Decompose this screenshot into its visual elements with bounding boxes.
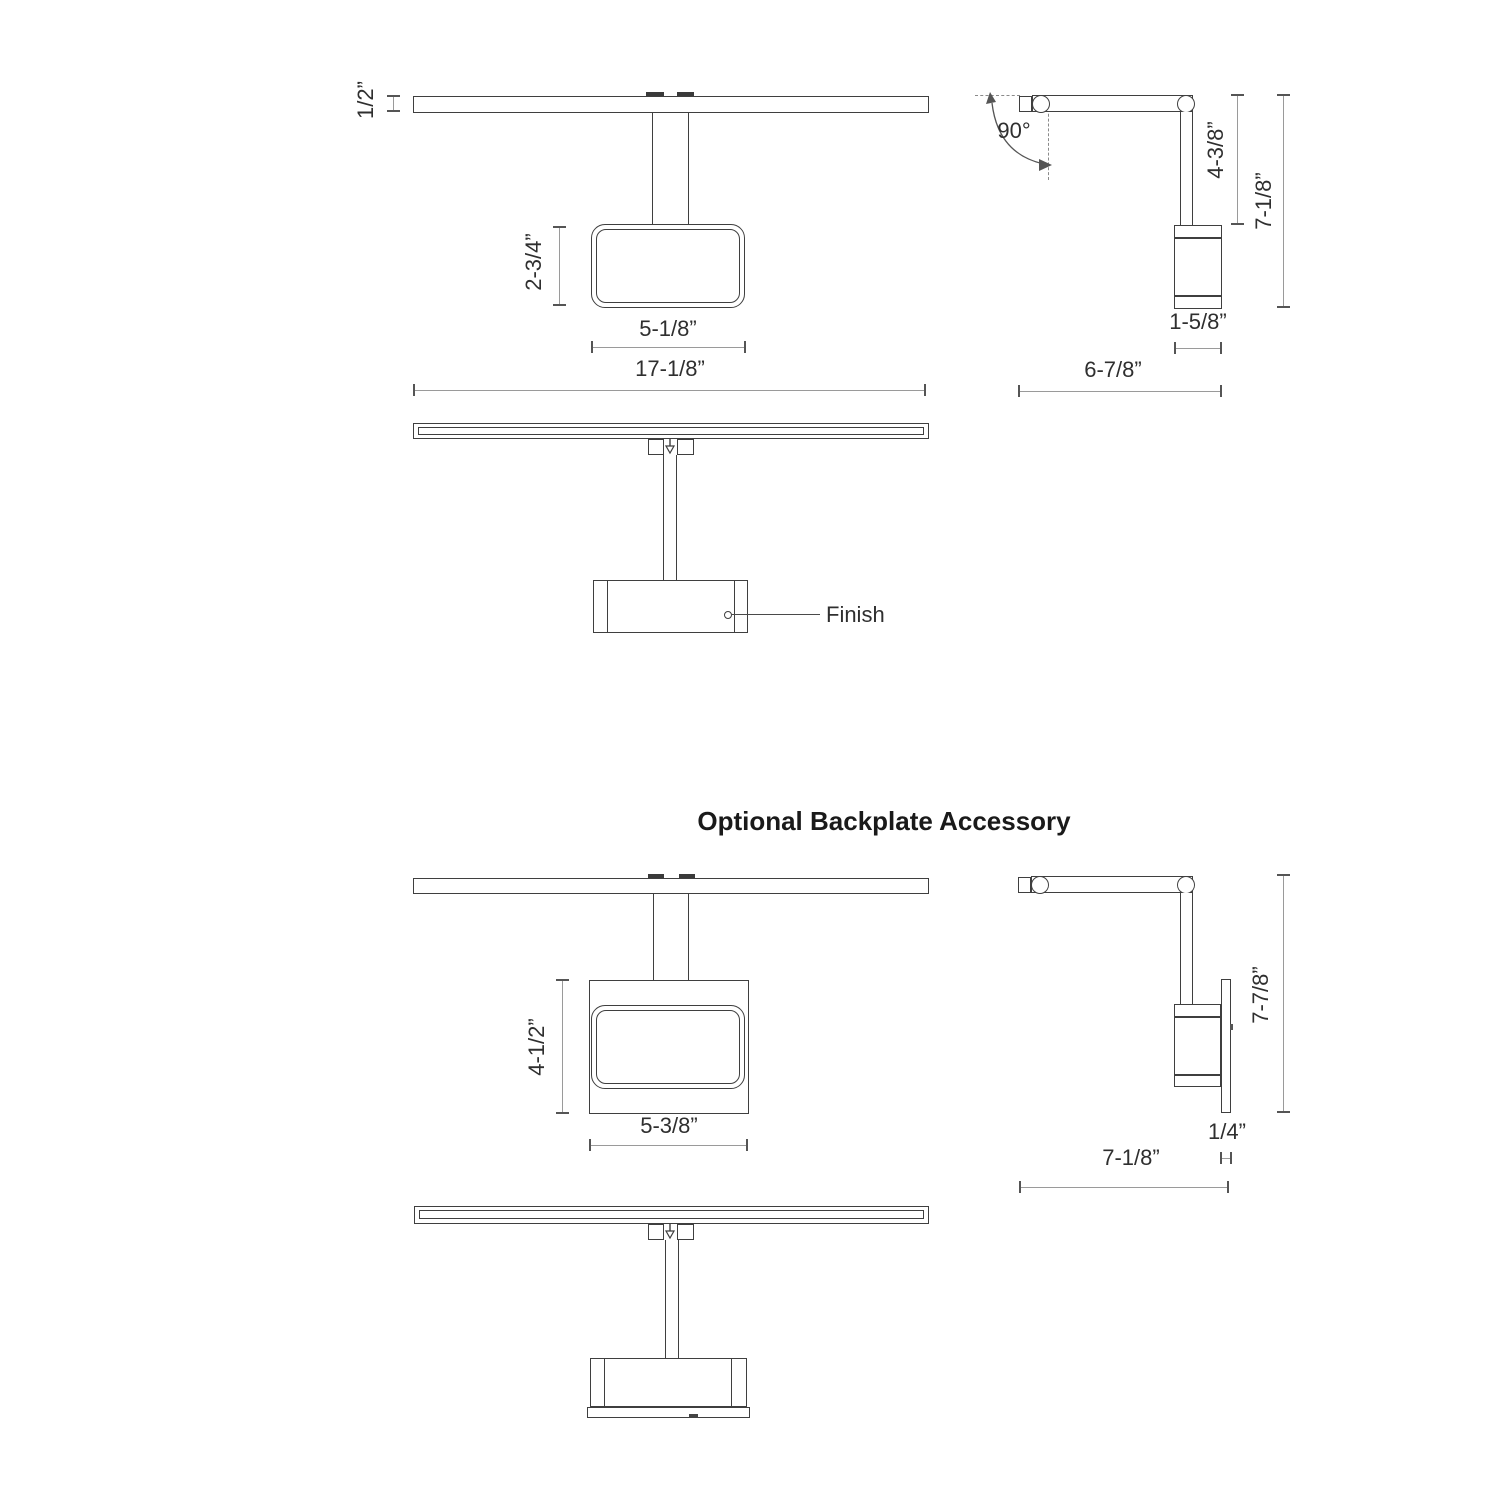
dim-tick bbox=[387, 95, 400, 97]
dim-line-overall-depth bbox=[1020, 1187, 1228, 1188]
dim-line-overall-height bbox=[1283, 875, 1284, 1113]
arm-stem bbox=[663, 455, 677, 580]
finish-label: Finish bbox=[826, 602, 885, 628]
horizontal-arm bbox=[1032, 95, 1193, 112]
dim-tick bbox=[1231, 94, 1244, 96]
dim-tick bbox=[1277, 874, 1290, 876]
dim-tick bbox=[1220, 1152, 1222, 1164]
vertical-arm bbox=[1180, 893, 1193, 1005]
light-bar bbox=[413, 878, 929, 894]
mount-tab-right bbox=[677, 92, 694, 96]
dim-tick bbox=[553, 304, 566, 306]
dim-tick bbox=[744, 341, 746, 353]
dim-tick bbox=[1018, 385, 1020, 397]
body-edge-line-left bbox=[604, 1358, 605, 1407]
dim-label-head-width: 5-1/8” bbox=[608, 316, 728, 342]
dim-tick bbox=[556, 1112, 569, 1114]
dim-tick bbox=[1230, 1152, 1232, 1164]
dim-tick bbox=[589, 1139, 591, 1151]
dim-tick bbox=[387, 110, 400, 112]
dim-label-overall-depth: 7-1/8” bbox=[1071, 1145, 1191, 1171]
dim-tick bbox=[1227, 1181, 1229, 1193]
dim-label-overall-depth: 6-7/8” bbox=[1053, 357, 1173, 383]
body-ring-line bbox=[1174, 295, 1222, 297]
body-edge-line-left bbox=[607, 580, 608, 633]
dim-tick bbox=[1220, 342, 1222, 354]
mount-tab-left bbox=[648, 874, 664, 878]
finish-screw-dot bbox=[724, 611, 732, 619]
dim-label-bar-height: 1/2” bbox=[353, 40, 379, 160]
mount-bracket-left bbox=[648, 1224, 664, 1240]
pivot-joint-left bbox=[1031, 876, 1049, 894]
dim-label-backplate-height: 4-1/2” bbox=[524, 987, 550, 1107]
dim-tick bbox=[1231, 223, 1244, 225]
dim-line-head-width bbox=[592, 347, 745, 348]
dim-label-body-width: 1-5/8” bbox=[1138, 309, 1258, 335]
pivot-block bbox=[1018, 877, 1031, 893]
section-title: Optional Backplate Accessory bbox=[684, 806, 1084, 837]
dim-tick bbox=[1019, 1181, 1021, 1193]
wall-body bbox=[590, 1358, 747, 1407]
horizontal-arm bbox=[1031, 876, 1193, 893]
dim-label-overall-height: 7-1/8” bbox=[1251, 141, 1277, 261]
body-edge-line-right bbox=[731, 1358, 732, 1407]
dim-tick bbox=[1277, 94, 1290, 96]
light-bar-inner bbox=[418, 427, 924, 435]
dim-label-backplate-thickness: 1/4” bbox=[1167, 1119, 1287, 1145]
arm-stem bbox=[665, 1240, 679, 1358]
pivot-joint-right bbox=[1177, 95, 1195, 113]
adjust-arrow-icon bbox=[663, 1222, 677, 1240]
dim-line-head-height bbox=[559, 227, 560, 306]
dim-tick bbox=[413, 384, 415, 396]
body-cap-line bbox=[1174, 1016, 1221, 1018]
dim-line-backplate-width bbox=[590, 1145, 747, 1146]
backplate-side-profile bbox=[1221, 979, 1231, 1113]
wall-body bbox=[593, 580, 748, 633]
body-edge-line-right bbox=[734, 580, 735, 633]
arm-stem bbox=[652, 113, 689, 224]
dim-tick bbox=[1277, 306, 1290, 308]
dim-label-overall-width: 17-1/8” bbox=[610, 356, 730, 382]
dim-label-overall-height: 7-7/8” bbox=[1248, 935, 1274, 1055]
pivot-joint-left bbox=[1032, 95, 1050, 113]
dim-tick bbox=[1220, 385, 1222, 397]
technical-drawing: 1/2” 2-3/4” 5-1/8” 17-1/8” 90° bbox=[0, 0, 1500, 1500]
mount-bracket-right bbox=[677, 439, 694, 455]
backplate-head-inner bbox=[596, 1010, 740, 1084]
flange-screw-mark bbox=[689, 1414, 698, 1418]
pivot-joint-right bbox=[1177, 876, 1195, 894]
dim-line-arm-length bbox=[1237, 95, 1238, 225]
dim-label-backplate-width: 5-3/8” bbox=[609, 1113, 729, 1139]
mount-tab-right bbox=[679, 874, 695, 878]
light-bar-inner bbox=[419, 1210, 924, 1219]
dim-tick bbox=[1174, 342, 1176, 354]
body-cap-line bbox=[1174, 237, 1222, 239]
dim-tick bbox=[591, 341, 593, 353]
dim-tick bbox=[553, 226, 566, 228]
dim-label-angle: 90° bbox=[954, 118, 1074, 144]
mount-tab-left bbox=[646, 92, 664, 96]
light-bar bbox=[413, 96, 929, 113]
dim-tick bbox=[924, 384, 926, 396]
backplate-flange bbox=[587, 1407, 750, 1418]
backplate-head-inner bbox=[596, 229, 740, 303]
adjust-arrow-icon bbox=[663, 437, 677, 455]
vertical-arm bbox=[1180, 112, 1193, 225]
body-ring-line bbox=[1174, 1074, 1221, 1076]
dim-tick bbox=[556, 979, 569, 981]
dim-line-backplate-height bbox=[562, 980, 563, 1114]
dim-line-overall-width bbox=[414, 390, 925, 391]
dim-tick bbox=[1277, 1111, 1290, 1113]
pivot-block bbox=[1019, 96, 1032, 112]
mount-bracket-right bbox=[677, 1224, 694, 1240]
backplate-screw-mark bbox=[1230, 1024, 1233, 1030]
dim-line-body-width bbox=[1175, 348, 1221, 349]
dim-line-overall-depth bbox=[1019, 391, 1221, 392]
mount-bracket-left bbox=[648, 439, 664, 455]
dim-tick bbox=[746, 1139, 748, 1151]
dim-line-overall-height bbox=[1283, 95, 1284, 308]
finish-leader-line bbox=[732, 614, 820, 615]
dim-label-arm-length: 4-3/8” bbox=[1203, 90, 1229, 210]
dim-label-head-height: 2-3/4” bbox=[521, 202, 547, 322]
